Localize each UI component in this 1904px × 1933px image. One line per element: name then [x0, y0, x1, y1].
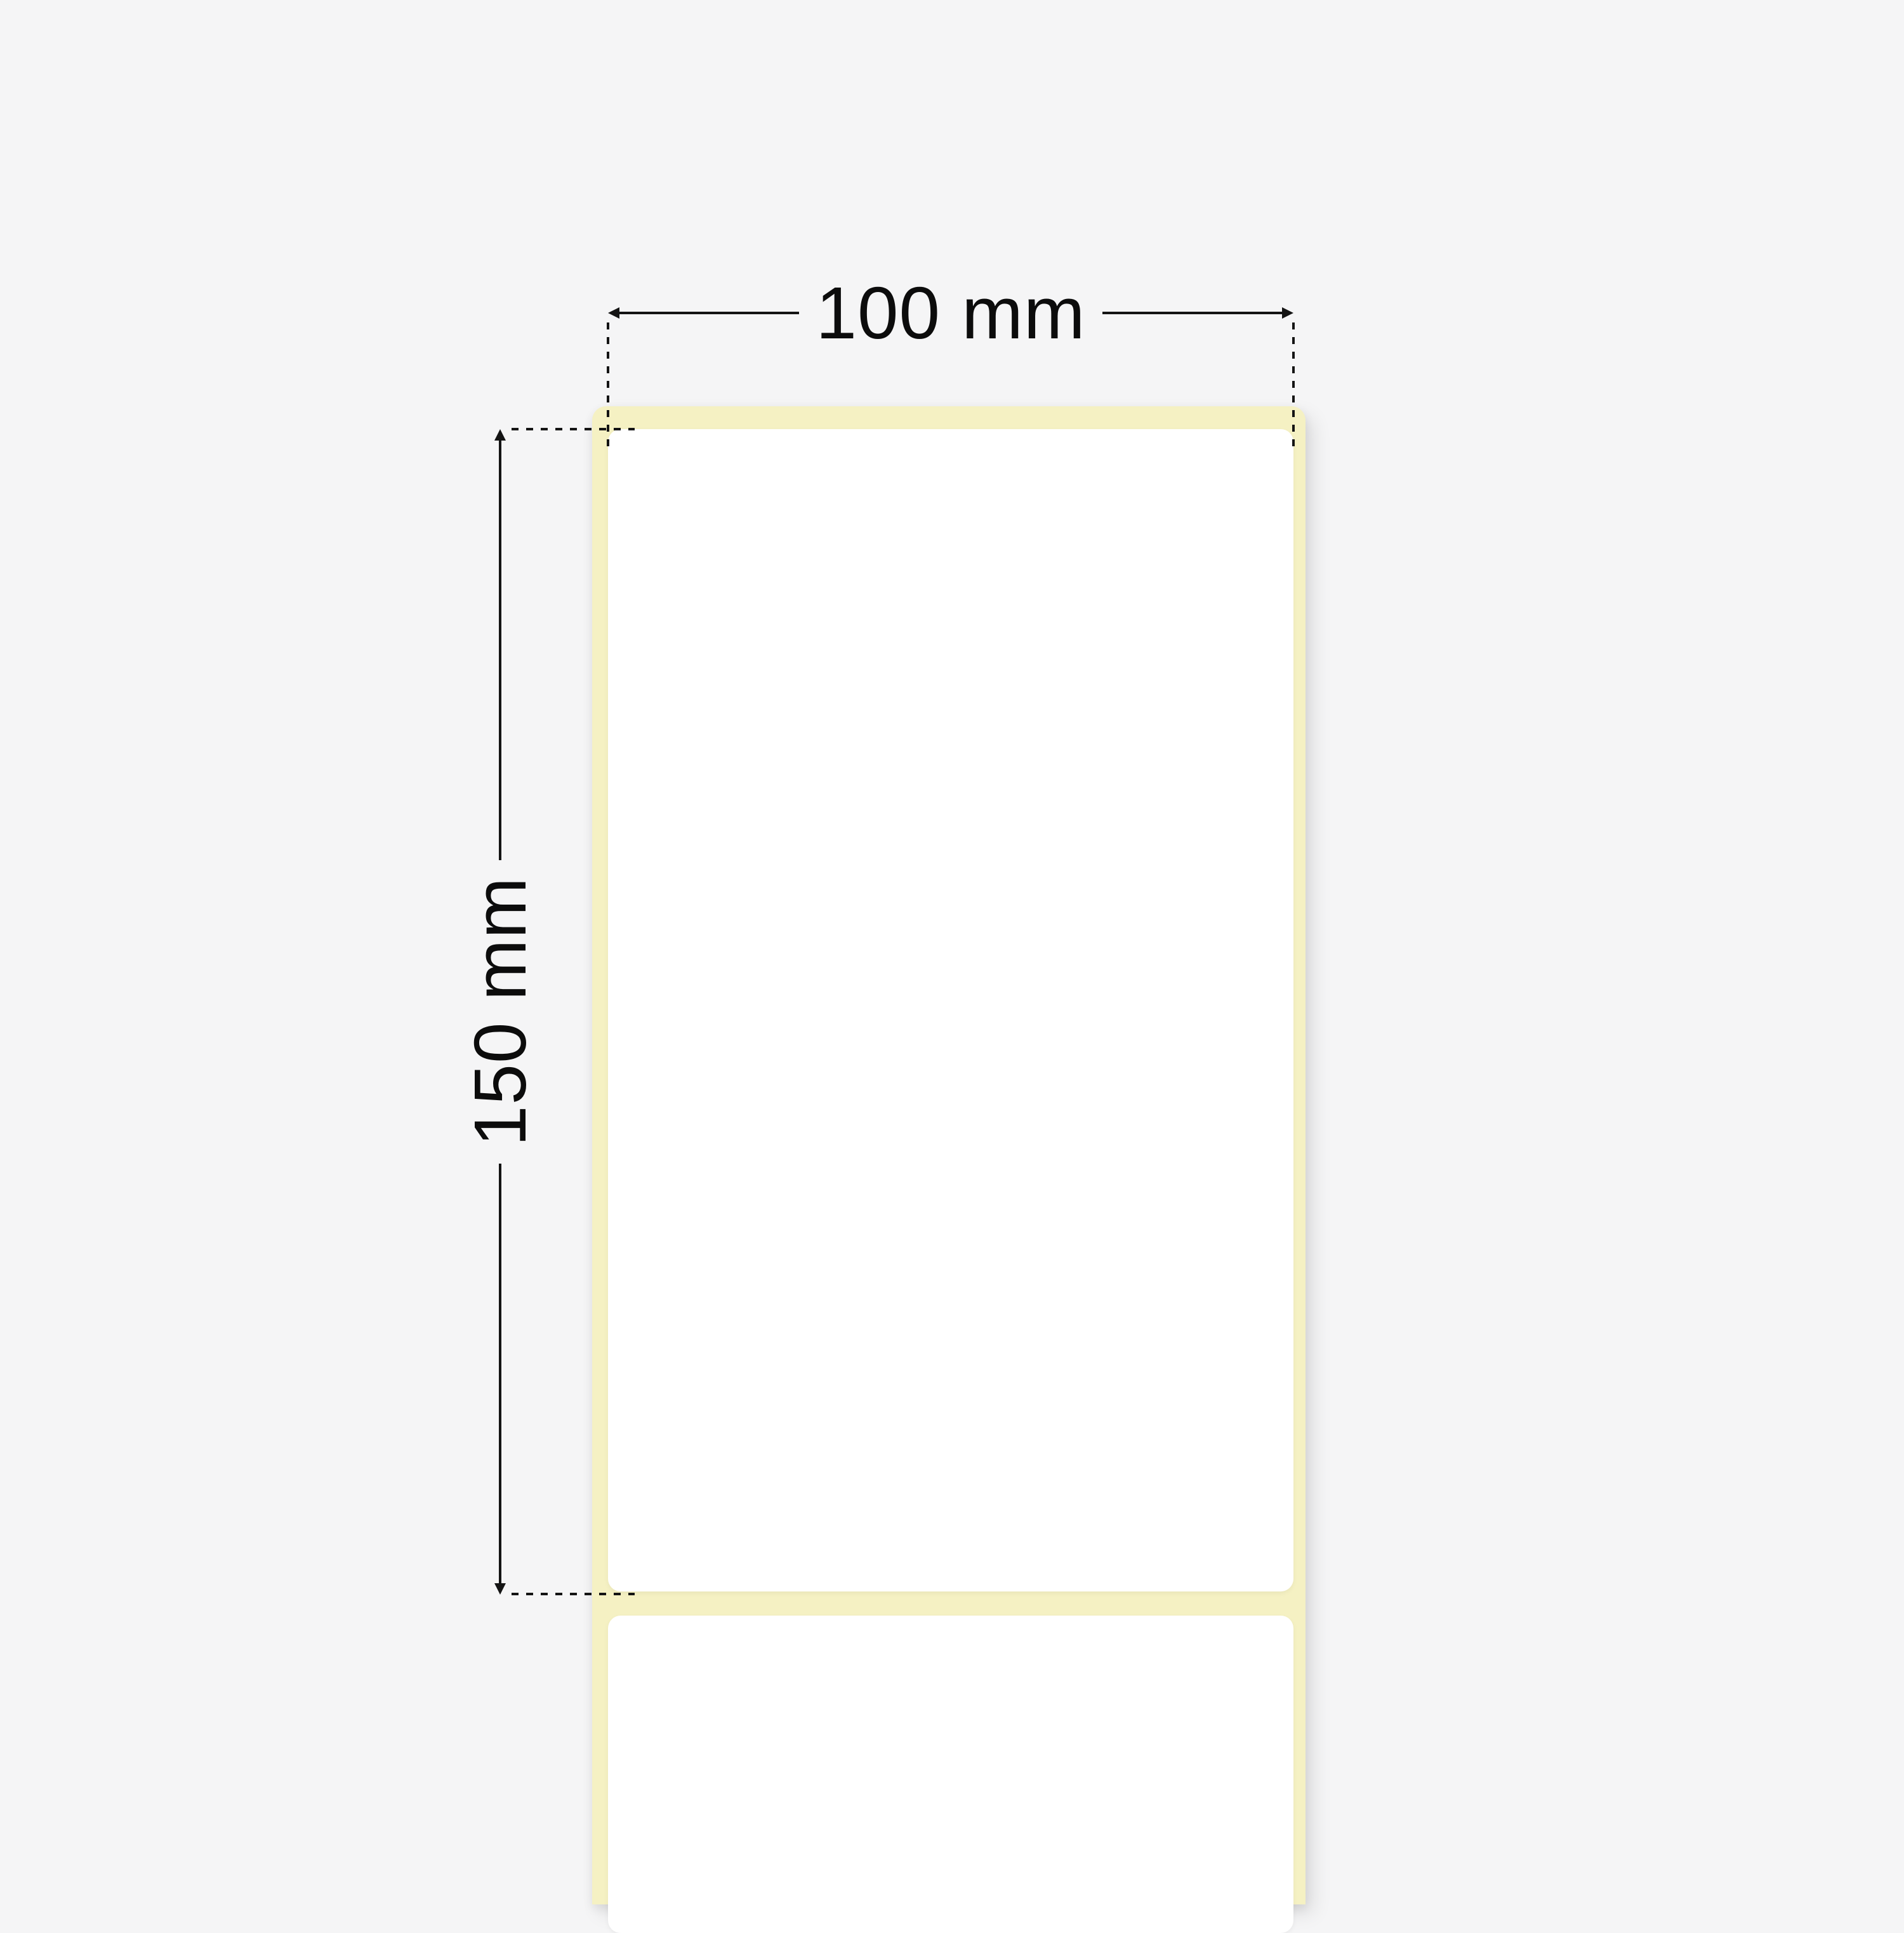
height-dimension: 150 mm — [459, 429, 541, 1595]
arrow-down-icon — [494, 1583, 506, 1595]
height-dimension-line — [499, 1164, 501, 1583]
width-dimension-line — [1102, 312, 1282, 314]
width-dimension-line — [619, 312, 799, 314]
arrow-left-icon — [608, 307, 619, 319]
label-bottom — [608, 1616, 1293, 1933]
label-dimension-diagram: 100 mm 150 mm — [0, 0, 1904, 1904]
label-top — [608, 429, 1293, 1591]
width-dimension: 100 mm — [608, 267, 1293, 359]
height-dimension-line — [499, 441, 501, 860]
width-value: 100 mm — [816, 276, 1085, 350]
arrow-right-icon — [1282, 307, 1293, 319]
height-value: 150 mm — [463, 877, 537, 1146]
arrow-up-icon — [494, 429, 506, 441]
